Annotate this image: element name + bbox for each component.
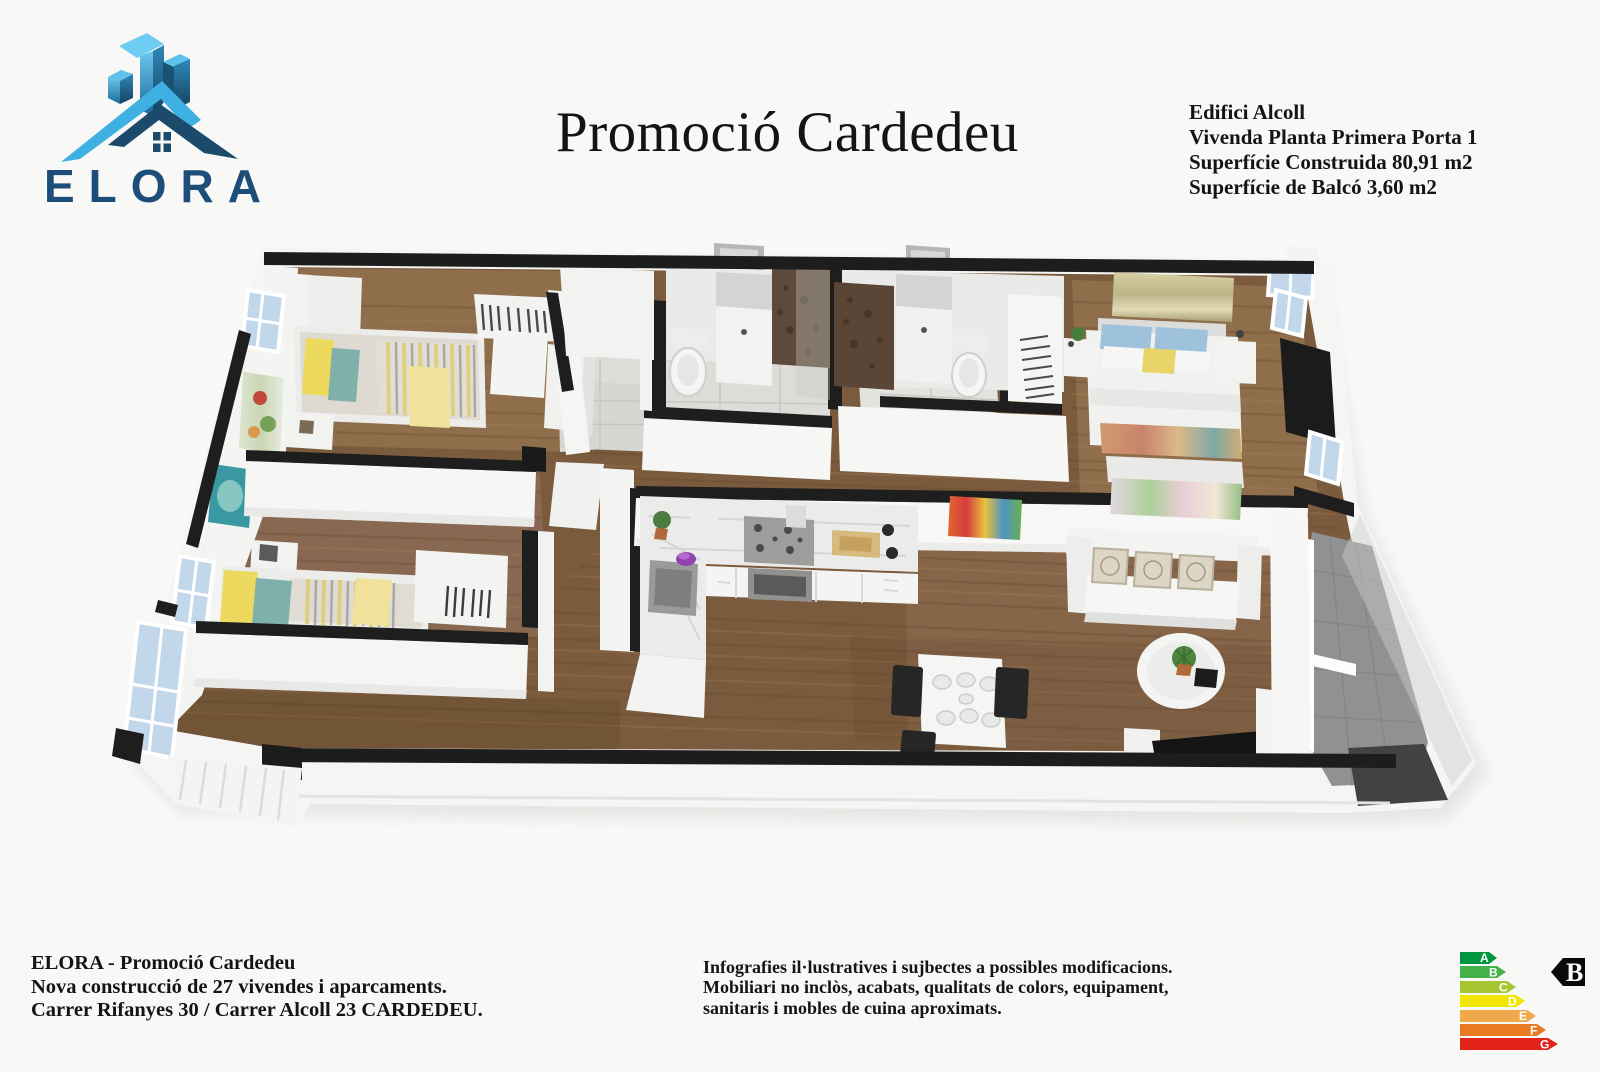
svg-text:D: D [1508,995,1517,1009]
svg-text:B: B [1566,958,1583,987]
svg-text:C: C [1499,981,1508,995]
svg-text:F: F [1530,1024,1537,1038]
svg-text:G: G [1540,1038,1549,1052]
svg-text:A: A [1480,951,1489,965]
svg-text:ELORA: ELORA [44,160,275,212]
svg-text:E: E [1519,1009,1527,1023]
svg-text:B: B [1489,966,1498,980]
